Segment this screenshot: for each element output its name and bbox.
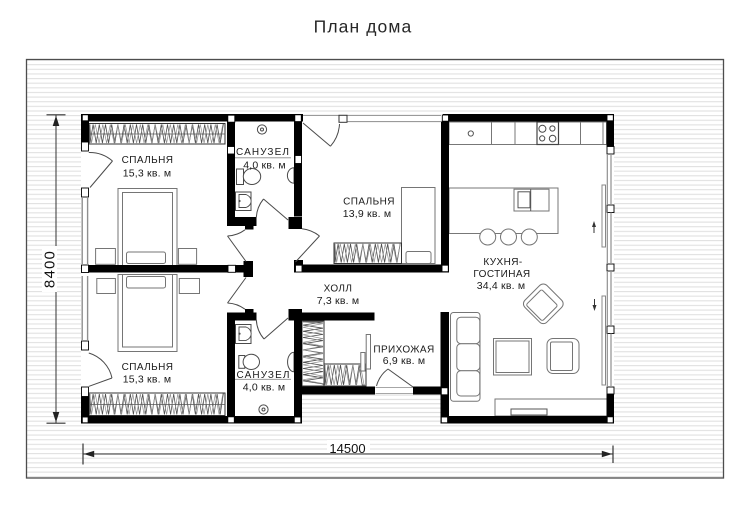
svg-text:7,3 кв. м: 7,3 кв. м: [317, 295, 360, 307]
svg-text:САНУЗЕЛ: САНУЗЕЛ: [236, 147, 290, 158]
svg-text:13,9 кв. м: 13,9 кв. м: [343, 208, 392, 220]
svg-text:КУХНЯ-: КУХНЯ-: [483, 257, 522, 268]
svg-text:15,3 кв. м: 15,3 кв. м: [123, 167, 172, 179]
svg-text:14500: 14500: [329, 441, 365, 456]
svg-text:4,0 кв. м: 4,0 кв. м: [243, 160, 286, 172]
svg-text:34,4 кв. м: 34,4 кв. м: [477, 280, 526, 292]
svg-text:8400: 8400: [42, 250, 59, 288]
svg-text:СПАЛЬНЯ: СПАЛЬНЯ: [122, 362, 174, 373]
svg-text:САНУЗЕЛ: САНУЗЕЛ: [237, 370, 291, 381]
svg-text:ХОЛЛ: ХОЛЛ: [324, 284, 353, 295]
svg-text:План дома: План дома: [314, 17, 413, 37]
svg-text:ГОСТИНАЯ: ГОСТИНАЯ: [473, 269, 530, 280]
svg-text:СПАЛЬНЯ: СПАЛЬНЯ: [122, 155, 174, 166]
svg-text:СПАЛЬНЯ: СПАЛЬНЯ: [343, 197, 395, 208]
svg-text:4,0 кв. м: 4,0 кв. м: [243, 381, 286, 393]
svg-text:15,3 кв. м: 15,3 кв. м: [123, 374, 172, 386]
svg-text:6,9 кв. м: 6,9 кв. м: [383, 355, 426, 367]
